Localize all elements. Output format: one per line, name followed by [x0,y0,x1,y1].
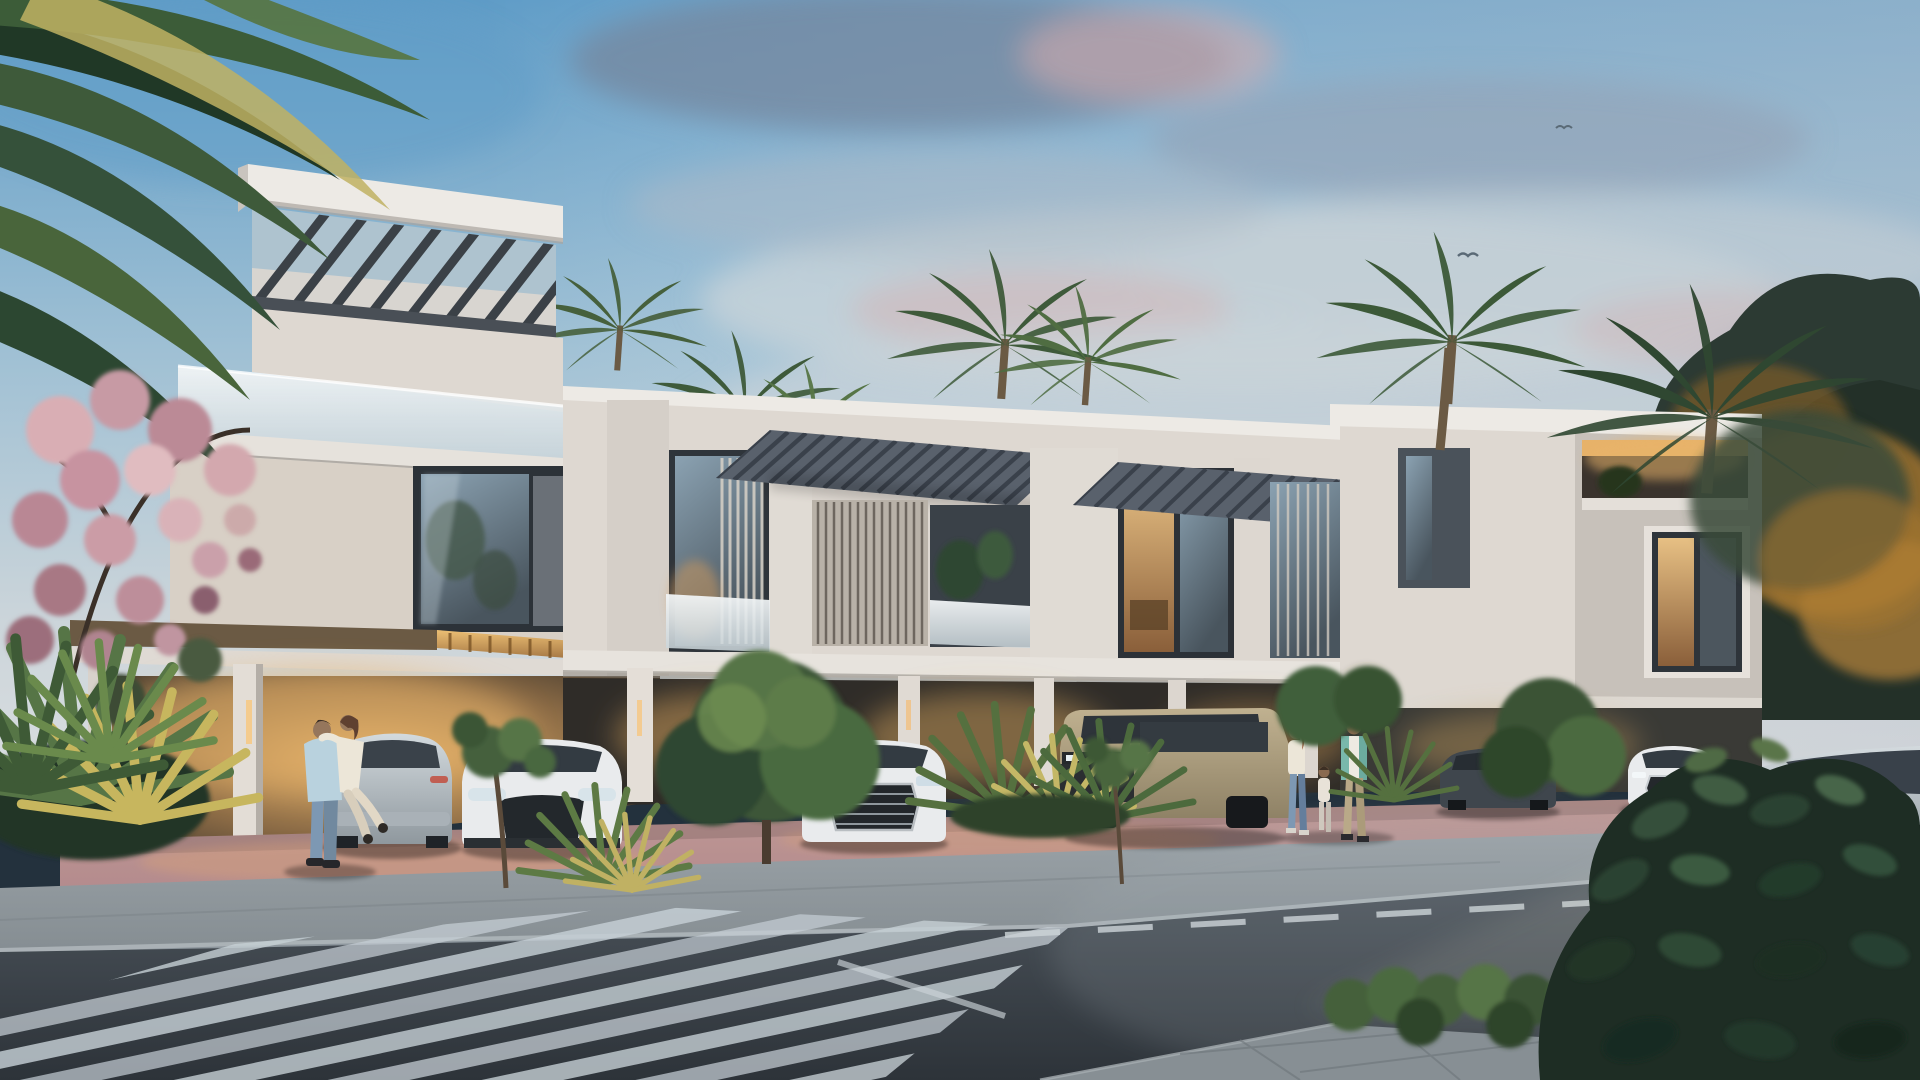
column-shade [256,664,263,850]
tree-green-foliage [178,638,222,682]
woman-shoe [378,823,388,833]
man-leg [324,798,338,864]
balcony-plant [936,540,984,600]
car-bumper [334,812,450,826]
villa-window-warm [1658,538,1694,666]
car-tire [1530,800,1548,810]
bay4-window [1270,482,1340,658]
terrace-plant [1598,466,1642,498]
underbrush [950,794,1130,838]
column-sconce-light [246,700,252,744]
people-shadow [1282,831,1394,845]
column-sconce-light [637,700,642,736]
woman-arm [322,736,338,740]
woman-shoe [1286,828,1296,833]
man-torso [304,738,342,802]
car-tire [426,836,448,848]
man-shoe [306,858,324,866]
shrub-trunk [762,820,771,864]
man-shoe [322,860,340,868]
woman-shoe [363,834,373,844]
truck-tire [1226,796,1268,828]
man-leg [310,798,324,862]
man-shoe [1341,834,1353,840]
woman-shoe [1299,830,1309,835]
car-tire [336,836,358,848]
child-top [1318,778,1330,802]
bay-frost-band [666,594,770,652]
window-furniture-hint [1130,600,1168,630]
cloud-grey-band [1150,78,1810,202]
villa-window-left-glass [1406,456,1432,580]
rendered-image [0,0,1920,1080]
child-leg [1326,802,1331,832]
child-leg [1319,802,1324,830]
window-reflection-tree [473,550,517,610]
cloud-pink-wisp [1020,7,1280,103]
scene-canvas [0,0,1920,1080]
cloud-band-mid [630,150,1270,260]
column-sconce-light [906,700,911,730]
man-shoe [1357,836,1369,842]
balcony-plant [977,531,1013,579]
balcony-frost [930,600,1030,648]
junction-pier [607,400,669,676]
car-drl [1632,772,1646,778]
car-tire [1448,800,1466,810]
car-taillight [430,776,448,783]
louver-screen [812,500,928,646]
